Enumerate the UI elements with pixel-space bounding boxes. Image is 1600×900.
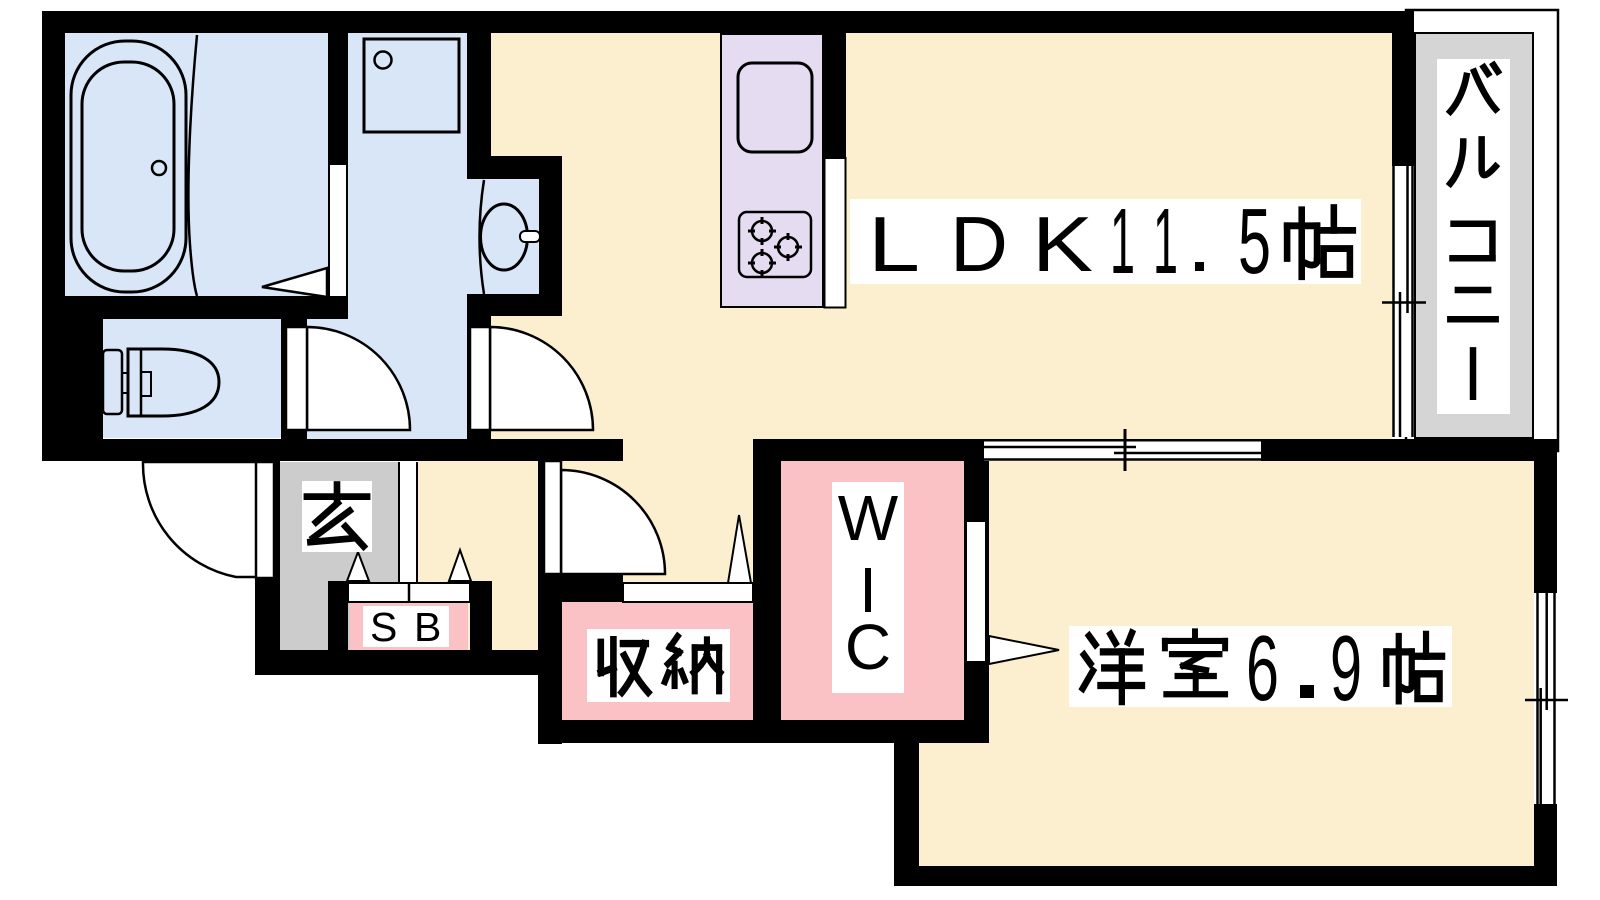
svg-text:5: 5	[1238, 189, 1271, 293]
svg-text:S: S	[370, 604, 397, 650]
svg-text:9: 9	[1330, 616, 1362, 720]
svg-text:B: B	[414, 604, 441, 650]
svg-text:6: 6	[1246, 616, 1279, 720]
svg-text:1: 1	[1153, 189, 1178, 293]
svg-text:D: D	[950, 200, 1008, 288]
svg-text:L: L	[868, 200, 920, 288]
svg-text:C: C	[845, 611, 891, 683]
svg-text:K: K	[1032, 200, 1093, 288]
svg-text:1: 1	[1110, 189, 1135, 293]
svg-text:W: W	[838, 482, 899, 554]
